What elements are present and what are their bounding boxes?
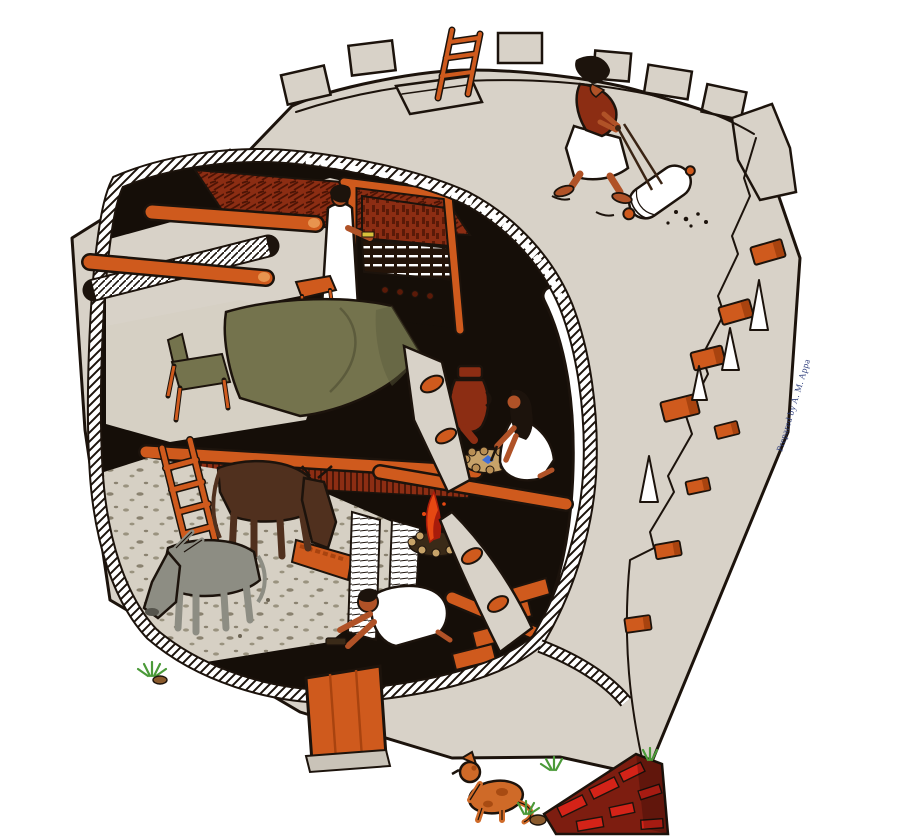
- house-cutaway-illustration: Prepared by A. M. Appa: [0, 0, 900, 840]
- plank-door: [306, 666, 390, 772]
- illustration-page: Prepared by A. M. Appa: [0, 0, 900, 840]
- dog: [452, 752, 531, 822]
- cutaway-opening: [94, 155, 590, 696]
- pebble: [530, 815, 546, 825]
- pebble: [153, 676, 167, 684]
